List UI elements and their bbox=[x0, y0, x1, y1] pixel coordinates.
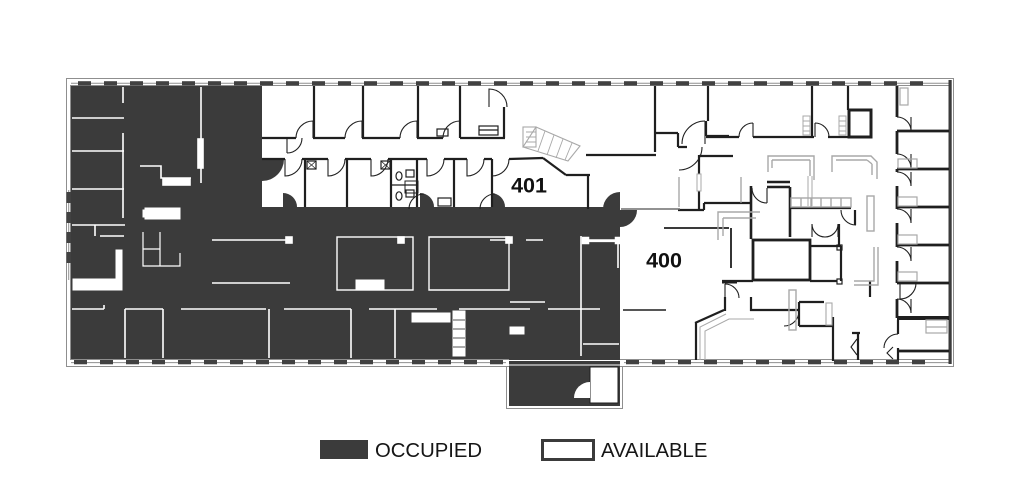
svg-text:400: 400 bbox=[646, 249, 682, 273]
svg-text:401: 401 bbox=[511, 174, 547, 198]
svg-text:OCCUPIED: OCCUPIED bbox=[375, 440, 482, 462]
svg-text:AVAILABLE: AVAILABLE bbox=[601, 440, 707, 462]
